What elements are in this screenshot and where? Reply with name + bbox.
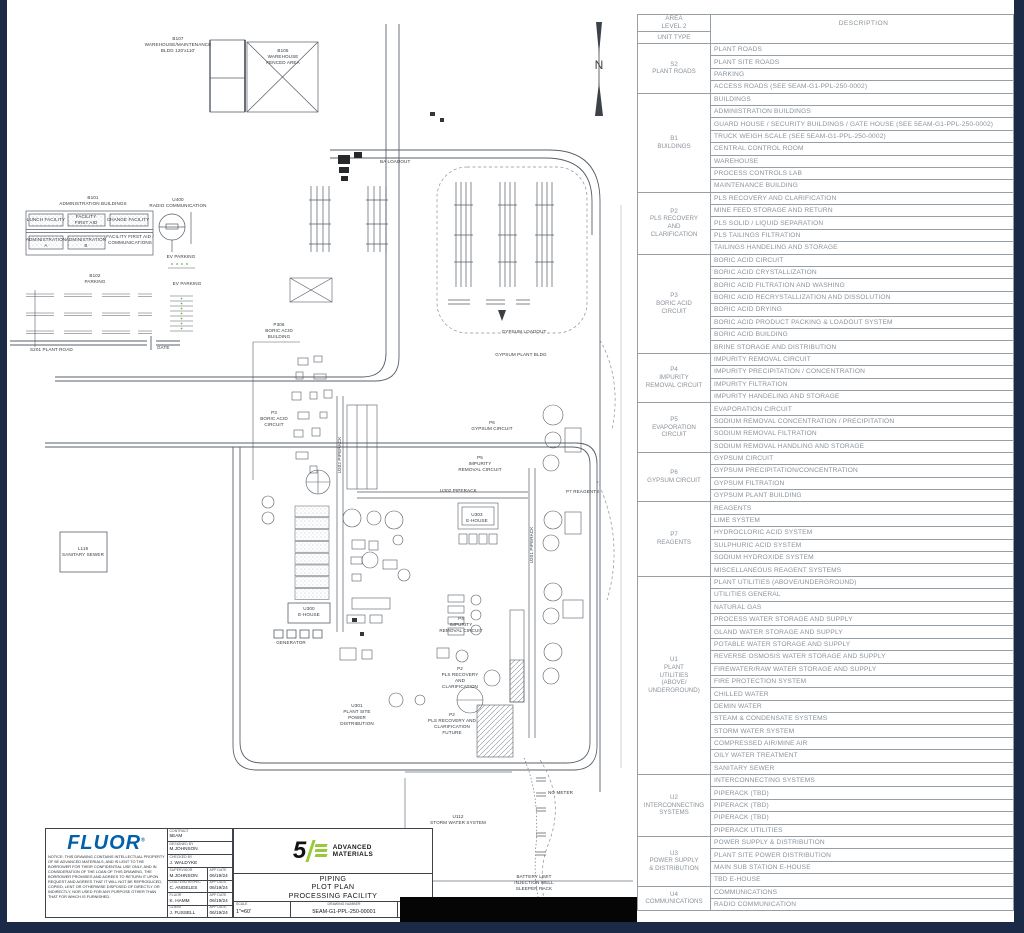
description-cell: STORM WATER SYSTEM <box>711 725 1014 737</box>
cooling-cells <box>295 506 329 599</box>
drawing-label: P2 PLS RECOVERY AND CLARIFICATION <box>442 666 479 690</box>
description-cell: SODIUM REMOVAL HANDLING AND STORAGE <box>711 440 1014 452</box>
5e-advanced-materials-logo: 5 ADVANCED MATERIALS <box>234 829 432 873</box>
table-row: P3 BORIC ACID CIRCUITBORIC ACID CIRCUIT <box>638 254 1014 266</box>
table-row: S2 PLANT ROADSPLANT ROADS <box>638 44 1014 56</box>
description-header: DESCRIPTION <box>711 15 1014 44</box>
title-block-notice-cell: FLUOR® NOTICE: THIS DRAWING CONTAINS INT… <box>45 828 168 918</box>
description-cell: IMPURITY PRECIPITATION / CONCENTRATION <box>711 366 1014 378</box>
drawing-label: FACILITY FIRST AID / COMMUNICATIONS <box>106 234 154 246</box>
description-cell: HYDROCLORIC ACID SYSTEM <box>711 527 1014 539</box>
description-cell: PLANT SITE POWER DISTRIBUTION <box>711 849 1014 861</box>
description-cell: GLAND WATER STORAGE AND SUPPLY <box>711 626 1014 638</box>
designed-by-cell: DESIGNED BYM.JOHNSON <box>168 842 232 854</box>
drawing-label: FACILITY FIRST AID <box>75 214 98 226</box>
description-cell: GYPSUM PRECIPITATION/CONCENTRATION <box>711 465 1014 477</box>
plot-plan-linework <box>0 0 637 933</box>
description-cell: CENTRAL CONTROL ROOM <box>711 143 1014 155</box>
description-cell: MAINTENANCE BUILDING <box>711 180 1014 192</box>
drawing-label: U301 PLANT SITE POWER DISTRIBUTION <box>340 703 374 727</box>
drawing-label: P3 BORIC ACID CIRCUIT <box>260 410 288 428</box>
unit-type-cell: U3 POWER SUPPLY & DISTRIBUTION <box>638 837 711 887</box>
area-level2-header: AREA LEVEL 2 <box>638 15 711 32</box>
table-row: U3 POWER SUPPLY & DISTRIBUTIONPOWER SUPP… <box>638 837 1014 849</box>
radio-communication-tower <box>159 212 191 252</box>
checked-by-cell: CHECKED BYJ. WALDYKE <box>168 855 232 867</box>
drawing-label: GATE <box>157 345 170 351</box>
unit-type-cell: U1 PLANT UTILITIES (ABOVE/ UNDERGROUND) <box>638 576 711 774</box>
drawing-label: EV PARKING <box>173 281 202 287</box>
description-cell: SODIUM REMOVAL CONCENTRATION / PRECIPITA… <box>711 415 1014 427</box>
description-cell: IMPURITY REMOVAL CIRCUIT <box>711 353 1014 365</box>
table-row: P6 GYPSUM CIRCUITGYPSUM CIRCUIT <box>638 452 1014 464</box>
description-cell: PIPERACK UTILITIES <box>711 824 1014 836</box>
unit-type-cell: P4 IMPURITY REMOVAL CIRCUIT <box>638 353 711 403</box>
description-cell: IMPURITY HANDELING AND STORAGE <box>711 390 1014 402</box>
unit-type-cell: S2 PLANT ROADS <box>638 44 711 94</box>
description-cell: SANITARY SEWER <box>711 762 1014 774</box>
notice-text: NOTICE: THIS DRAWING CONTAINS INTELLECTU… <box>46 854 167 901</box>
drawing-label: S201 PLANT ROAD <box>30 347 73 353</box>
description-cell: POTABLE WATER STORAGE AND SUPPLY <box>711 638 1014 650</box>
description-cell: PROCESS WATER STORAGE AND SUPPLY <box>711 613 1014 625</box>
approval-row: LEAD ENG'R/SPECC. ANGELESAPP DATE06/19/2… <box>168 881 232 893</box>
unit-type-header: UNIT TYPE <box>638 32 711 44</box>
description-cell: GYPSUM PLANT BUILDING <box>711 490 1014 502</box>
drawing-number-cell: DRAWING NUMBER 5EAM-G1-PPL-250-00001 <box>291 902 398 917</box>
drawing-label: U201 PIPERACK <box>529 527 535 564</box>
description-cell: PLANT ROADS <box>711 44 1014 56</box>
description-cell: NATURAL GAS <box>711 601 1014 613</box>
description-cell: PLS RECOVERY AND CLARIFICATION <box>711 192 1014 204</box>
description-cell: PLANT UTILITIES (ABOVE/UNDERGROUND) <box>711 576 1014 588</box>
drawing-label: B105 WAREHOUSE FENCED AREA <box>266 48 300 66</box>
description-cell: STEAM & CONDENSATE SYSTEMS <box>711 713 1014 725</box>
description-cell: RADIO COMMUNICATION <box>711 898 1014 910</box>
table-row: U4 COMMUNICATIONSCOMMUNICATIONS <box>638 886 1014 898</box>
drawing-number-value: 5EAM-G1-PPL-250-00001 <box>293 909 395 915</box>
area-table-body: S2 PLANT ROADSPLANT ROADSPLANT SITE ROAD… <box>638 44 1014 911</box>
description-cell: CHILLED WATER <box>711 688 1014 700</box>
description-cell: PARKING <box>711 68 1014 80</box>
parking-lot <box>26 290 152 347</box>
unit-type-cell: P3 BORIC ACID CIRCUIT <box>638 254 711 353</box>
drawing-label: CHANGE FACILITY <box>107 217 149 223</box>
drawing-label: U303 E-HOUSE <box>466 512 488 524</box>
drawing-label: L119 SANITARY SEWER <box>62 546 104 558</box>
unit-type-cell: P7 REAGENTS <box>638 502 711 576</box>
drawing-label: B107 WAREHOUSE/MAINTENANCE BLDG 120'x110… <box>145 36 212 54</box>
drawing-label: U112 STORM WATER SYSTEM <box>430 814 486 826</box>
approval-row: CLIENTJ. FUSSELLAPP DATE06/19/24 <box>168 906 232 917</box>
description-cell: REVERSE OSMOSIS WATER STORAGE AND SUPPLY <box>711 651 1014 663</box>
description-cell: FIREWATER/RAW WATER STORAGE AND SUPPLY <box>711 663 1014 675</box>
drawing-label: U202 PIPERACK <box>337 437 343 474</box>
description-cell: PLS SOLID / LIQUID SEPARATION <box>711 217 1014 229</box>
description-cell: SODIUM HYDROXIDE SYSTEM <box>711 552 1014 564</box>
logo-e-bars <box>315 842 327 859</box>
description-cell: BORIC ACID DRYING <box>711 304 1014 316</box>
drawing-label: BA LOADOUT <box>380 159 410 165</box>
description-cell: PLS TAILINGS FILTRATION <box>711 229 1014 241</box>
drawing-label: P4 IMPURITY REMOVAL CIRCUIT <box>439 616 482 634</box>
table-row: B1 BUILDINGSBUILDINGS <box>638 93 1014 105</box>
drawing-label: LUNCH FACILITY <box>27 217 65 223</box>
scale-value: 1"=60' <box>236 909 288 915</box>
contract-cell: CONTRACT5EAM <box>168 829 232 841</box>
unit-type-cell: P5 EVAPORATION CIRCUIT <box>638 403 711 453</box>
scale-cell: SCALE 1"=60' <box>234 902 291 917</box>
description-cell: OILY WATER TREATMENT <box>711 750 1014 762</box>
description-cell: INTERCONNECTING SYSTEMS <box>711 775 1014 787</box>
table-row: P7 REAGENTSREAGENTS <box>638 502 1014 514</box>
description-cell: TRUCK WEIGH SCALE (SEE 5EAM-G1-PPL-250-0… <box>711 130 1014 142</box>
drawing-label: GENERATOR <box>276 640 306 646</box>
drawing-label: N <box>595 58 604 74</box>
fluor-logo: FLUOR® <box>46 833 167 853</box>
unit-type-cell: B1 BUILDINGS <box>638 93 711 192</box>
drawing-label: NO METER <box>548 790 573 796</box>
storm-water-boundary <box>405 205 633 881</box>
unit-type-cell: U4 COMMUNICATIONS <box>638 886 711 911</box>
description-cell: EVAPORATION CIRCUIT <box>711 403 1014 415</box>
table-row: U1 PLANT UTILITIES (ABOVE/ UNDERGROUND)P… <box>638 576 1014 588</box>
description-cell: WAREHOUSE <box>711 155 1014 167</box>
plot-plan-drawing: B107 WAREHOUSE/MAINTENANCE BLDG 120'x110… <box>0 0 637 933</box>
misc-dark-marks <box>352 112 444 636</box>
description-cell: ADMINISTRATION BUILDINGS <box>711 105 1014 117</box>
drawing-label: U302 PIPERACK <box>440 488 477 494</box>
area-description-table: AREA LEVEL 2 DESCRIPTION UNIT TYPE S2 PL… <box>637 14 1014 911</box>
description-cell: UTILITIES GENERAL <box>711 589 1014 601</box>
drawing-label: P306 BORIC ACID BUILDING <box>265 322 293 340</box>
drawing-label: B102 PARKING <box>84 273 105 285</box>
drawing-label: EV PARKING <box>167 254 196 260</box>
description-cell: TBD E-HOUSE <box>711 874 1014 886</box>
description-cell: FIRE PROTECTION SYSTEM <box>711 675 1014 687</box>
description-cell: PLANT SITE ROADS <box>711 56 1014 68</box>
rail-tracks <box>309 182 554 304</box>
description-cell: GYPSUM FILTRATION <box>711 477 1014 489</box>
description-cell: MAIN SUB STATION E-HOUSE <box>711 861 1014 873</box>
warehouse-maintenance-building <box>210 40 245 112</box>
border-right <box>1014 0 1024 933</box>
description-cell: PIPERACK (TBD) <box>711 812 1014 824</box>
description-cell: BORIC ACID RECRYSTALLIZATION AND DISSOLU… <box>711 291 1014 303</box>
description-cell: POWER SUPPLY & DISTRIBUTION <box>711 837 1014 849</box>
redaction-bar <box>400 897 637 923</box>
description-cell: COMMUNICATIONS <box>711 886 1014 898</box>
description-cell: SODIUM REMOVAL FILTRATION <box>711 428 1014 440</box>
description-cell: DEMIN WATER <box>711 700 1014 712</box>
description-cell: ACCESS ROADS (SEE 5EAM-G1-PPL-250-0002) <box>711 81 1014 93</box>
table-row: P2 PLS RECOVERY AND CLARIFICATIONPLS REC… <box>638 192 1014 204</box>
unit-type-cell: U2 INTERCONNECTING SYSTEMS <box>638 775 711 837</box>
description-cell: BRINE STORAGE AND DISTRIBUTION <box>711 341 1014 353</box>
drawing-label: BATTERY LIMIT INJECTION WELL SLEEPER RAC… <box>514 874 553 892</box>
description-cell: GUARD HOUSE / SECURITY BUILDINGS / GATE … <box>711 118 1014 130</box>
table-row: P5 EVAPORATION CIRCUITEVAPORATION CIRCUI… <box>638 403 1014 415</box>
description-cell: TAILINGS HANDELING AND STORAGE <box>711 242 1014 254</box>
drawing-label: B101 ADMINISTRATION BUILDINGS <box>59 195 126 207</box>
gypsum-loadout-chute <box>498 310 506 321</box>
ev-parking-stalls <box>168 263 195 331</box>
approval-row: SUPERVISORM.JOHNSONAPP DATE06/19/24 <box>168 868 232 880</box>
description-cell: BORIC ACID FILTRATION AND WASHING <box>711 279 1014 291</box>
description-cell: LIME SYSTEM <box>711 514 1014 526</box>
ba-loadout <box>338 152 362 181</box>
description-cell: GYPSUM CIRCUIT <box>711 452 1014 464</box>
description-cell: MINE FEED STORAGE AND RETURN <box>711 205 1014 217</box>
approval-row: FLUORK. HAMMAPP DATE06/19/24 <box>168 893 232 905</box>
drawing-label: P5 IMPURITY REMOVAL CIRCUIT <box>458 455 501 473</box>
description-cell: BORIC ACID CRYSTALLIZATION <box>711 267 1014 279</box>
description-cell: BORIC ACID PRODUCT PACKING & LOADOUT SYS… <box>711 316 1014 328</box>
description-cell: BORIC ACID CIRCUIT <box>711 254 1014 266</box>
description-cell: SULPHURIC ACID SYSTEM <box>711 539 1014 551</box>
description-cell: PIPERACK (TBD) <box>711 799 1014 811</box>
unit-type-cell: P6 GYPSUM CIRCUIT <box>638 452 711 502</box>
drawing-label: U400 RADIO COMMUNICATION <box>149 197 206 209</box>
drawing-label: U300 E-HOUSE <box>298 606 320 618</box>
drawing-label: GYPSUM PLANT BLDG <box>495 352 546 358</box>
drawing-label: P6 GYPSUM CIRCUIT <box>471 420 512 432</box>
dashed-roads <box>437 167 615 905</box>
drawing-label: P7 REAGENTS <box>566 489 599 495</box>
table-row: P4 IMPURITY REMOVAL CIRCUITIMPURITY REMO… <box>638 353 1014 365</box>
description-cell: PROCESS CONTROLS LAB <box>711 167 1014 179</box>
title-block-signoff-column: CONTRACT5EAM DESIGNED BYM.JOHNSON CHECKE… <box>167 828 233 918</box>
drawing-label: ADMINISTRATION B <box>66 237 106 249</box>
description-cell: REAGENTS <box>711 502 1014 514</box>
border-left <box>0 0 7 933</box>
table-row: U2 INTERCONNECTING SYSTEMSINTERCONNECTIN… <box>638 775 1014 787</box>
process-equipment <box>253 278 583 757</box>
drawing-label: ADMINISTRATION A <box>26 237 66 249</box>
description-cell: BORIC ACID BUILDING <box>711 328 1014 340</box>
drawing-label: P2 PLS RECOVERY AND CLARIFICATION FUTURE <box>428 712 476 736</box>
description-cell: IMPURITY FILTRATION <box>711 378 1014 390</box>
unit-type-cell: P2 PLS RECOVERY AND CLARIFICATION <box>638 192 711 254</box>
description-cell: MISCELLANEOUS REAGENT SYSTEMS <box>711 564 1014 576</box>
description-cell: COMPRESSED AIR/MINE AIR <box>711 737 1014 749</box>
description-cell: BUILDINGS <box>711 93 1014 105</box>
drawing-label: GYPSUM LOADOUT <box>502 329 547 335</box>
border-bottom <box>0 922 1024 933</box>
description-cell: PIPERACK (TBD) <box>711 787 1014 799</box>
